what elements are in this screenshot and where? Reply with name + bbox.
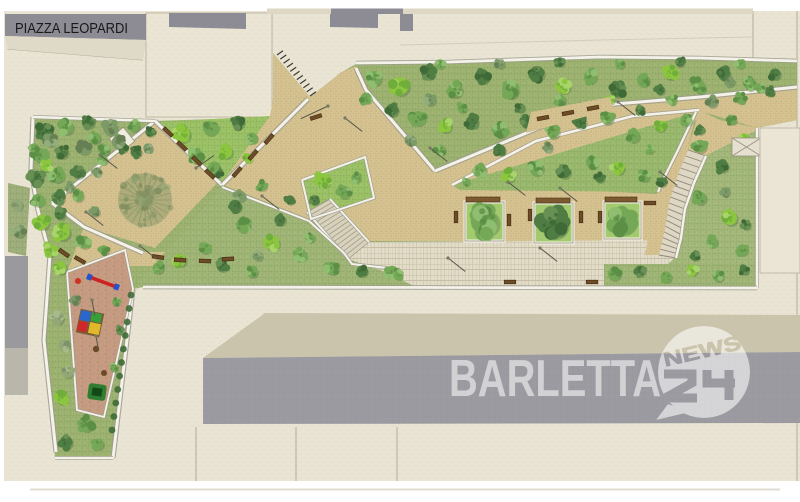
svg-text:BARLETTA: BARLETTA <box>449 350 661 408</box>
svg-text:PIAZZA LEOPARDI: PIAZZA LEOPARDI <box>15 21 128 37</box>
